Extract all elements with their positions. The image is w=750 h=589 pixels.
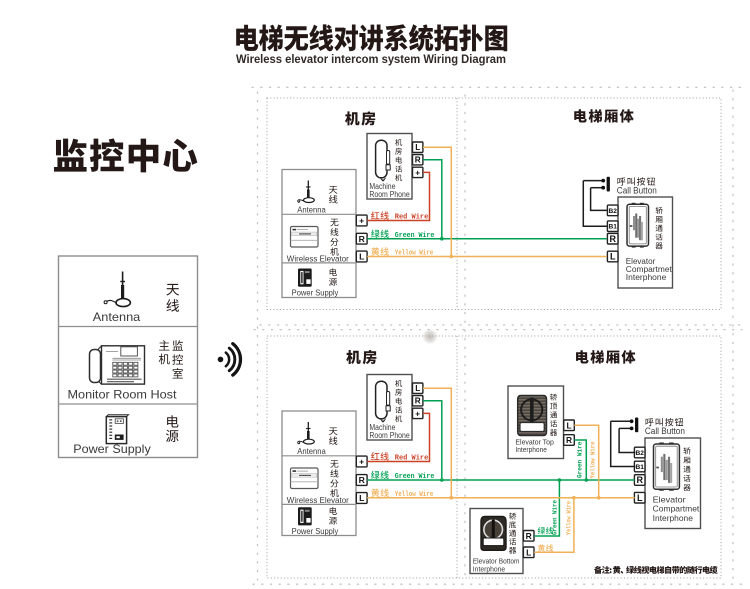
- svg-text:R: R: [609, 234, 616, 244]
- svg-text:Red Wire: Red Wire: [395, 214, 429, 222]
- svg-text:Yellow Wire: Yellow Wire: [589, 441, 596, 478]
- svg-text:Interphone: Interphone: [473, 564, 505, 573]
- svg-text:Green Wire: Green Wire: [577, 441, 584, 478]
- svg-text:Antenna: Antenna: [297, 446, 326, 456]
- svg-text:+: +: [359, 457, 364, 467]
- svg-text:Green Wire: Green Wire: [395, 232, 435, 240]
- svg-text:Antenna: Antenna: [93, 311, 141, 324]
- svg-text:R: R: [359, 234, 366, 244]
- svg-text:Room Phone: Room Phone: [369, 431, 410, 440]
- svg-text:Call Button: Call Button: [645, 426, 685, 436]
- svg-text:R: R: [636, 475, 643, 485]
- svg-text:Call Button: Call Button: [617, 186, 657, 196]
- svg-text:+: +: [359, 216, 364, 226]
- svg-text:L: L: [359, 252, 364, 262]
- svg-text:Yellow Wire: Yellow Wire: [395, 491, 434, 499]
- svg-text:Room Phone: Room Phone: [369, 190, 410, 199]
- svg-text:Green Wire: Green Wire: [395, 473, 435, 481]
- svg-text:Interphone: Interphone: [515, 445, 547, 454]
- svg-text:L: L: [637, 493, 643, 503]
- svg-text:Antenna: Antenna: [297, 205, 326, 215]
- svg-text:L: L: [526, 547, 531, 557]
- svg-text:L: L: [610, 252, 616, 262]
- svg-text:R: R: [566, 435, 572, 445]
- svg-text:Interphone: Interphone: [626, 273, 667, 282]
- svg-text:B2: B2: [635, 450, 644, 457]
- svg-text:Yellow Wire: Yellow Wire: [566, 501, 573, 535]
- svg-text:R: R: [415, 397, 421, 406]
- svg-text:R: R: [359, 475, 366, 485]
- svg-text:Interphone: Interphone: [653, 514, 694, 523]
- svg-text:B2: B2: [608, 208, 617, 215]
- svg-text:L: L: [566, 420, 571, 430]
- svg-text:Compartmet: Compartmet: [653, 505, 700, 514]
- svg-text:+: +: [415, 409, 420, 418]
- svg-text:L: L: [415, 384, 420, 393]
- svg-text:Wireless elevator intercom sys: Wireless elevator intercom system Wiring…: [236, 52, 506, 66]
- svg-text:Elevator: Elevator: [653, 495, 686, 504]
- svg-text:L: L: [415, 143, 420, 152]
- svg-text:B1: B1: [635, 464, 644, 471]
- svg-text:Green Wire: Green Wire: [551, 500, 558, 535]
- svg-text:Wireless Elevator: Wireless Elevator: [287, 253, 349, 263]
- svg-text:Yellow Wire: Yellow Wire: [395, 250, 434, 258]
- svg-text:Red Wire: Red Wire: [395, 454, 429, 462]
- svg-text:Power Supply: Power Supply: [73, 443, 151, 456]
- svg-text:Wireless Elevator: Wireless Elevator: [287, 495, 349, 505]
- svg-text:Power Supply: Power Supply: [292, 287, 339, 297]
- svg-text:B1: B1: [608, 224, 617, 231]
- svg-text:R: R: [415, 156, 421, 165]
- svg-text:Power Supply: Power Supply: [292, 526, 339, 536]
- svg-text:R: R: [526, 531, 532, 541]
- svg-text:Monitor Room Host: Monitor Room Host: [68, 389, 178, 402]
- svg-text:L: L: [359, 493, 364, 503]
- svg-text:+: +: [415, 168, 420, 177]
